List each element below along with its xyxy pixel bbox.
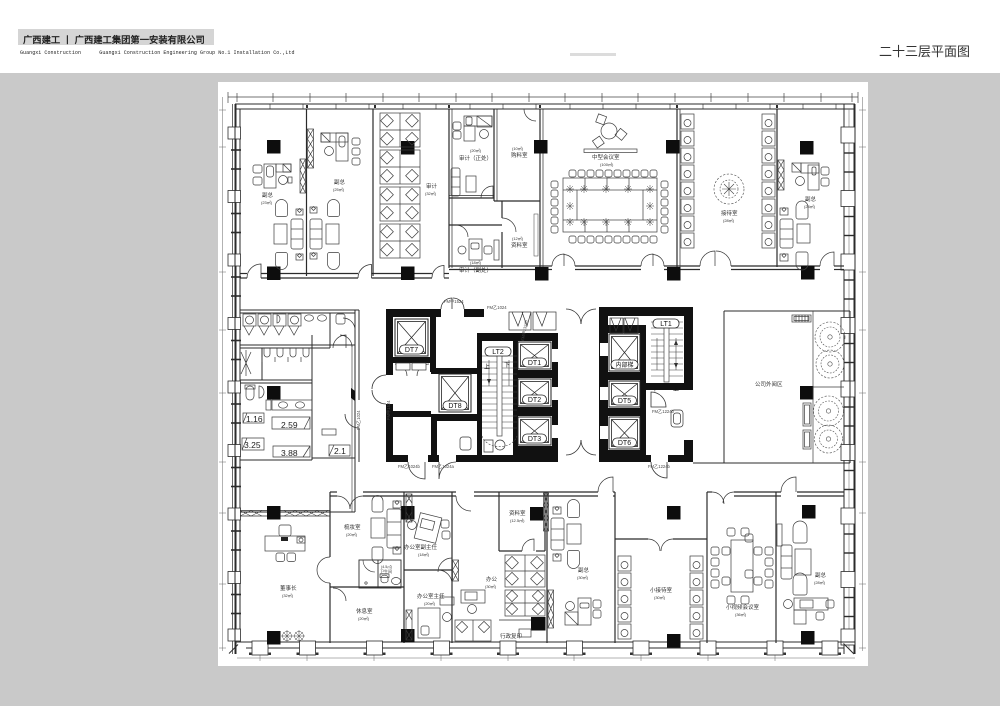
- svg-text:LT2: LT2: [492, 349, 504, 356]
- svg-text:(4.5㎡): (4.5㎡): [381, 564, 392, 569]
- svg-text:资料室: 资料室: [511, 241, 528, 249]
- svg-text:(12.5㎡): (12.5㎡): [510, 517, 525, 523]
- svg-text:(23㎡): (23㎡): [261, 199, 273, 205]
- svg-text:(28㎡): (28㎡): [814, 579, 826, 585]
- svg-text:(100㎡): (100㎡): [600, 161, 614, 167]
- svg-text:3.88: 3.88: [281, 448, 298, 458]
- svg-text:(20㎡): (20㎡): [346, 531, 358, 537]
- svg-text:副总: 副总: [262, 191, 274, 199]
- svg-text:上: 上: [484, 363, 490, 371]
- svg-text:审计（副处）: 审计（副处）: [459, 266, 492, 274]
- svg-text:副总: 副总: [815, 571, 827, 579]
- svg-text:(10㎡): (10㎡): [512, 145, 524, 151]
- svg-text:DT1: DT1: [528, 360, 541, 367]
- svg-text:DT2: DT2: [528, 397, 541, 404]
- svg-text:(20㎡): (20㎡): [358, 615, 370, 621]
- svg-text:副总: 副总: [578, 566, 590, 574]
- svg-text:FM乙1224b: FM乙1224b: [648, 463, 671, 469]
- svg-text:休息室: 休息室: [356, 607, 373, 615]
- svg-text:办公: 办公: [486, 575, 498, 583]
- svg-text:董事长: 董事长: [280, 584, 297, 592]
- svg-text:(20㎡): (20㎡): [470, 147, 482, 153]
- svg-text:3.25: 3.25: [244, 440, 261, 450]
- svg-text:DT8: DT8: [448, 403, 461, 410]
- svg-text:中型会议室: 中型会议室: [592, 153, 620, 161]
- svg-text:公司外阅区: 公司外阅区: [755, 380, 783, 388]
- svg-text:小视频会议室: 小视频会议室: [726, 603, 760, 611]
- svg-text:DT6: DT6: [618, 440, 631, 447]
- svg-text:(28㎡): (28㎡): [723, 217, 735, 223]
- svg-text:(12㎡): (12㎡): [512, 235, 524, 241]
- svg-text:下: 下: [504, 362, 510, 369]
- svg-text:DT5: DT5: [618, 398, 631, 405]
- svg-text:审计: 审计: [426, 182, 438, 190]
- svg-text:LT1: LT1: [660, 321, 672, 328]
- svg-text:上: 上: [673, 385, 679, 393]
- svg-text:内部梯: 内部梯: [615, 361, 633, 369]
- svg-text:资料室: 资料室: [509, 509, 526, 517]
- svg-text:(36㎡): (36㎡): [735, 611, 747, 617]
- svg-text:梳妆室: 梳妆室: [344, 523, 361, 531]
- svg-text:(32㎡): (32㎡): [425, 190, 437, 196]
- svg-text:(30㎡): (30㎡): [654, 594, 666, 600]
- svg-text:小接待室: 小接待室: [650, 586, 673, 594]
- svg-text:2.59: 2.59: [281, 420, 298, 430]
- svg-text:2.1: 2.1: [334, 446, 346, 456]
- svg-text:行政复印: 行政复印: [500, 632, 523, 640]
- svg-text:DT7: DT7: [405, 347, 418, 354]
- svg-text:办公室副主任: 办公室副主任: [404, 543, 438, 551]
- svg-text:副总: 副总: [805, 195, 817, 203]
- svg-text:(18㎡): (18㎡): [418, 551, 430, 557]
- svg-text:FM乙1024b: FM乙1024b: [398, 463, 421, 469]
- svg-text:FM乙1024a: FM乙1024a: [432, 463, 455, 469]
- svg-text:(18㎡): (18㎡): [470, 259, 482, 265]
- svg-text:DT3: DT3: [528, 436, 541, 443]
- svg-text:FM乙1224b: FM乙1224b: [652, 408, 675, 414]
- svg-text:1.16: 1.16: [246, 414, 263, 424]
- svg-text:审计（正处）: 审计（正处）: [459, 154, 492, 162]
- svg-text:购料室: 购料室: [511, 151, 528, 159]
- svg-text:(32㎡): (32㎡): [282, 592, 294, 598]
- svg-text:FM甲1524: FM甲1524: [444, 299, 464, 305]
- svg-text:(28㎡): (28㎡): [804, 203, 816, 209]
- svg-text:(30㎡): (30㎡): [577, 574, 589, 580]
- svg-text:副总: 副总: [334, 178, 346, 186]
- svg-text:FM乙1024: FM乙1024: [355, 410, 361, 430]
- svg-text:办公室主任: 办公室主任: [417, 592, 445, 600]
- svg-text:(30㎡): (30㎡): [485, 583, 497, 589]
- svg-text:(25㎡): (25㎡): [333, 186, 345, 192]
- svg-text:(20㎡): (20㎡): [424, 600, 436, 606]
- svg-text:接待室: 接待室: [721, 209, 738, 217]
- svg-text:FM乙1024: FM乙1024: [487, 304, 507, 310]
